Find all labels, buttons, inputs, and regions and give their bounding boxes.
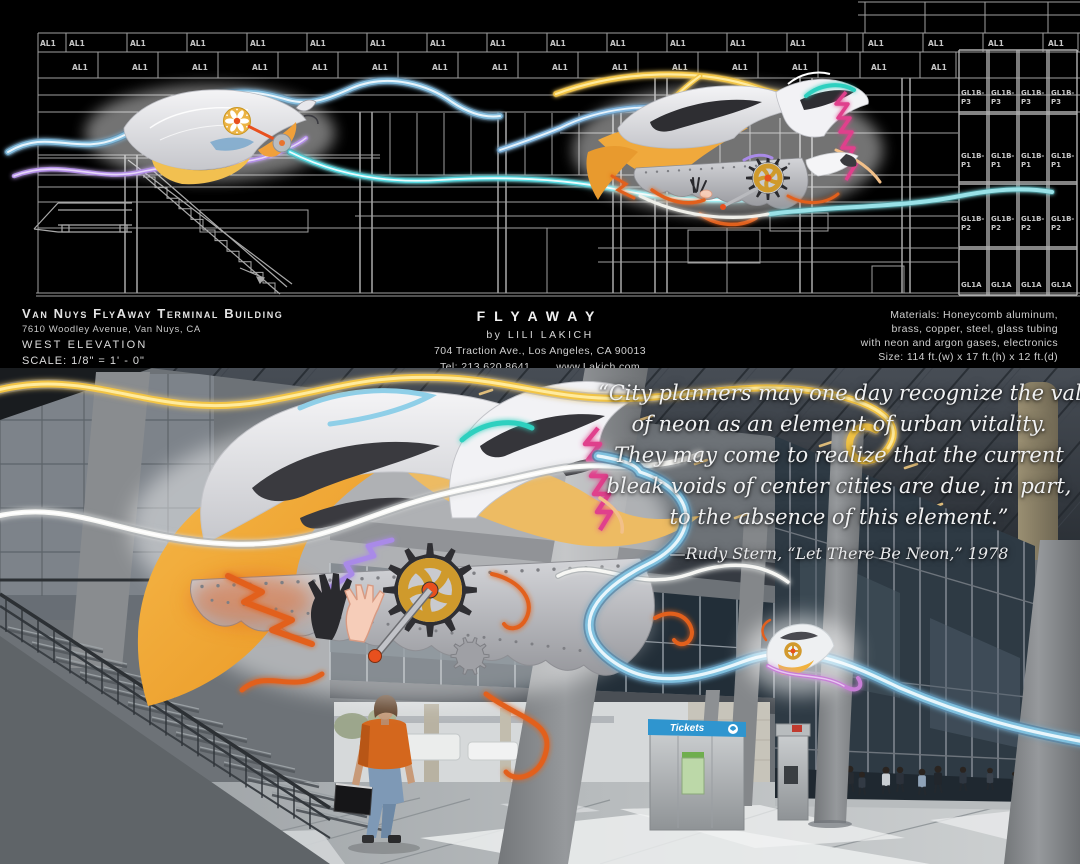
svg-text:AL1: AL1 — [372, 63, 388, 72]
svg-text:AL1: AL1 — [868, 39, 884, 48]
materials-line-1: Materials: Honeycomb aluminum, — [861, 309, 1058, 322]
svg-text:GL1B-: GL1B- — [1051, 215, 1074, 223]
svg-text:AL1: AL1 — [310, 39, 326, 48]
specs-block: Materials: Honeycomb aluminum, brass, co… — [861, 308, 1058, 365]
svg-text:AL1: AL1 — [928, 39, 944, 48]
svg-text:AL1: AL1 — [432, 63, 448, 72]
svg-text:AL1: AL1 — [252, 63, 268, 72]
svg-text:GL1B-: GL1B- — [1021, 89, 1044, 97]
svg-text:GL1B-: GL1B- — [1021, 215, 1044, 223]
svg-text:P2: P2 — [991, 224, 1001, 232]
svg-text:AL1: AL1 — [730, 39, 746, 48]
svg-text:GL1B-: GL1B- — [1051, 152, 1074, 160]
svg-text:AL1: AL1 — [40, 39, 56, 48]
svg-text:AL1: AL1 — [190, 39, 206, 48]
svg-text:AL1: AL1 — [790, 39, 806, 48]
elevation-staircase — [34, 160, 292, 294]
svg-text:AL1: AL1 — [550, 39, 566, 48]
rod-end — [369, 650, 382, 663]
svg-text:GL1A: GL1A — [1051, 281, 1072, 289]
svg-text:AL1: AL1 — [132, 63, 148, 72]
size-line: Size: 114 ft.(w) x 17 ft.(h) x 12 ft.(d) — [861, 351, 1058, 364]
svg-text:AL1: AL1 — [610, 39, 626, 48]
elevation-panel-labels-row1: AL1AL1AL1AL1AL1AL1AL1AL1AL1AL1AL1AL1AL1A… — [40, 39, 1064, 48]
svg-text:AL1: AL1 — [492, 63, 508, 72]
quote-line: of neon as an element of urban vitality. — [598, 409, 1080, 440]
svg-text:GL1B-: GL1B- — [991, 215, 1014, 223]
svg-text:P2: P2 — [961, 224, 971, 232]
svg-text:AL1: AL1 — [312, 63, 328, 72]
svg-text:GL1A: GL1A — [991, 281, 1012, 289]
svg-text:P3: P3 — [1021, 98, 1031, 106]
svg-text:P2: P2 — [1051, 224, 1061, 232]
quote-line: “City planners may one day recognize the… — [598, 378, 1080, 409]
svg-text:AL1: AL1 — [552, 63, 568, 72]
svg-text:GL1B-: GL1B- — [1021, 152, 1044, 160]
svg-text:AL1: AL1 — [672, 63, 688, 72]
svg-text:GL1B-: GL1B- — [991, 152, 1014, 160]
quote-line: bleak voids of center cities are due, in… — [598, 471, 1080, 502]
quote-line: to the absence of this element.” — [598, 502, 1080, 533]
quote-line: They may come to realize that the curren… — [598, 440, 1080, 471]
materials-line-3: with neon and argon gases, electronics — [861, 337, 1058, 350]
svg-text:P1: P1 — [1051, 161, 1061, 169]
svg-text:GL1B-: GL1B- — [961, 89, 984, 97]
kiosk-label: Tickets — [670, 723, 705, 734]
svg-text:AL1: AL1 — [871, 63, 887, 72]
svg-text:AL1: AL1 — [430, 39, 446, 48]
photo-montage-section: Tickets — [0, 368, 1080, 864]
svg-text:P1: P1 — [1021, 161, 1031, 169]
svg-text:AL1: AL1 — [370, 39, 386, 48]
svg-text:P3: P3 — [961, 98, 971, 106]
second-kiosk — [776, 724, 810, 820]
svg-text:GL1B-: GL1B- — [961, 152, 984, 160]
quote-attribution: —Rudy Stern, “Let There Be Neon,” 1978 — [598, 544, 1080, 563]
elevation-drawing: AL1AL1AL1AL1AL1AL1AL1AL1AL1AL1AL1AL1AL1A… — [0, 0, 1080, 300]
svg-text:GL1A: GL1A — [1021, 281, 1042, 289]
materials-line-2: brass, copper, steel, glass tubing — [861, 323, 1058, 336]
elevation-drawing-section: AL1AL1AL1AL1AL1AL1AL1AL1AL1AL1AL1AL1AL1A… — [0, 0, 1080, 300]
svg-text:GL1B-: GL1B- — [1051, 89, 1074, 97]
caption-band: Van Nuys FlyAway Terminal Building 7610 … — [0, 300, 1080, 368]
svg-text:P1: P1 — [961, 161, 971, 169]
svg-text:AL1: AL1 — [988, 39, 1004, 48]
svg-text:P3: P3 — [991, 98, 1001, 106]
svg-text:AL1: AL1 — [732, 63, 748, 72]
svg-text:GL1B-: GL1B- — [991, 89, 1014, 97]
svg-text:AL1: AL1 — [69, 39, 85, 48]
svg-text:AL1: AL1 — [931, 63, 947, 72]
svg-text:AL1: AL1 — [670, 39, 686, 48]
ticket-kiosk: Tickets — [648, 719, 746, 830]
svg-text:AL1: AL1 — [490, 39, 506, 48]
svg-text:P3: P3 — [1051, 98, 1061, 106]
elevation-panel-labels-row2: AL1AL1AL1AL1AL1AL1AL1AL1AL1AL1AL1AL1AL1A… — [72, 63, 947, 72]
svg-text:AL1: AL1 — [250, 39, 266, 48]
svg-text:GL1A: GL1A — [961, 281, 982, 289]
svg-text:AL1: AL1 — [792, 63, 808, 72]
svg-text:AL1: AL1 — [130, 39, 146, 48]
quote-block: “City planners may one day recognize the… — [598, 378, 1080, 563]
elevation-left-gear — [224, 108, 251, 135]
presentation-board: AL1AL1AL1AL1AL1AL1AL1AL1AL1AL1AL1AL1AL1A… — [0, 0, 1080, 864]
svg-text:P2: P2 — [1021, 224, 1031, 232]
svg-text:AL1: AL1 — [72, 63, 88, 72]
svg-text:AL1: AL1 — [192, 63, 208, 72]
elevation-glass-grid — [959, 50, 1077, 295]
svg-text:AL1: AL1 — [1048, 39, 1064, 48]
svg-text:AL1: AL1 — [612, 63, 628, 72]
svg-text:GL1B-: GL1B- — [961, 215, 984, 223]
svg-text:P1: P1 — [991, 161, 1001, 169]
